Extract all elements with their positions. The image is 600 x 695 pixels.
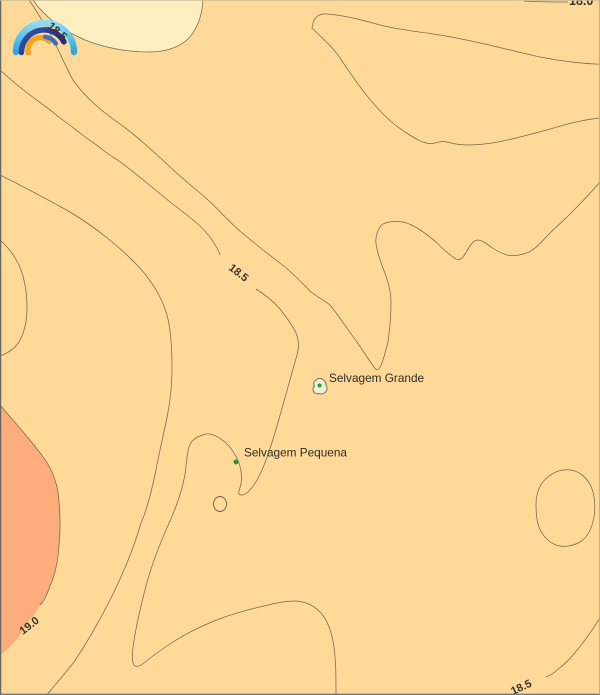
svg-text:Selvagem Pequena: Selvagem Pequena <box>244 446 347 460</box>
svg-text:Selvagem Grande: Selvagem Grande <box>329 371 425 385</box>
svg-text:18.0: 18.0 <box>569 0 593 8</box>
